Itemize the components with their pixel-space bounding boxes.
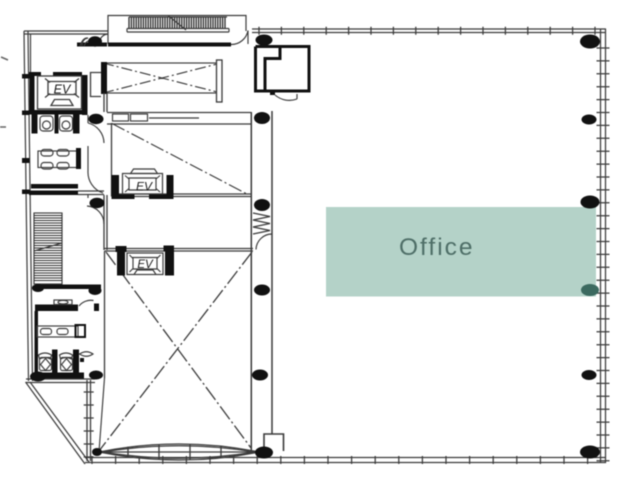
svg-text:Office: Office xyxy=(399,234,475,261)
svg-text:EV: EV xyxy=(136,180,153,194)
svg-text:EV: EV xyxy=(54,83,72,97)
svg-text:EV: EV xyxy=(137,259,154,271)
